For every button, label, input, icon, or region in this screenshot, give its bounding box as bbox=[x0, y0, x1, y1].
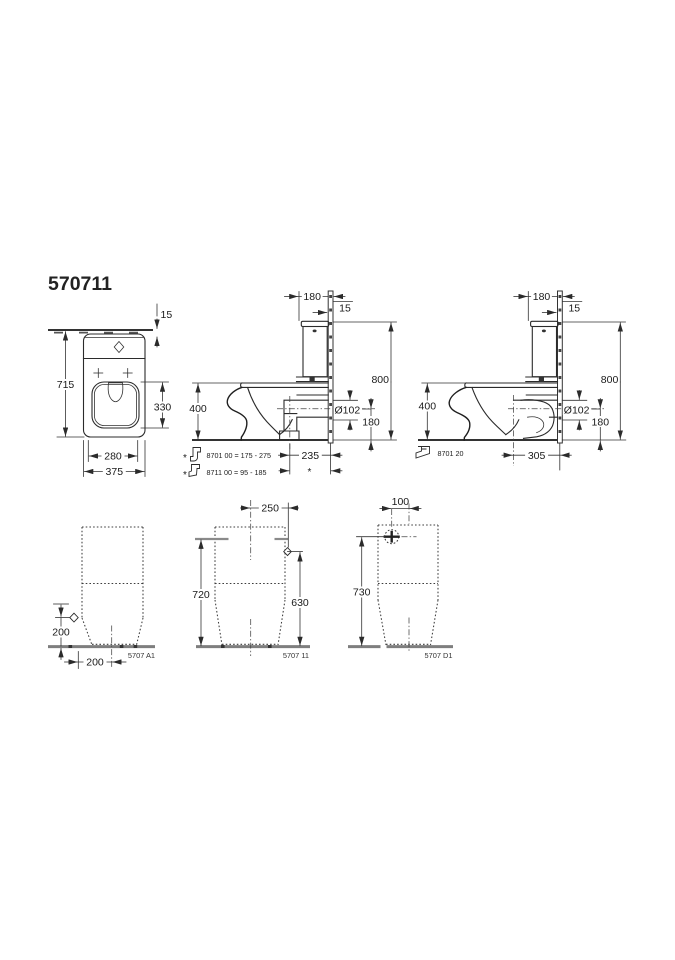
dim-inlet-offset-label: 100 bbox=[392, 496, 410, 508]
dim-bowl-height-label: 400 bbox=[419, 401, 437, 413]
dim-outlet-distance-label: 235 bbox=[302, 450, 320, 462]
body-outline-dashed bbox=[378, 525, 438, 645]
vertical-outlet-bend-icon bbox=[191, 448, 201, 462]
cistern bbox=[532, 327, 556, 377]
dim-bowl-height-label: 400 bbox=[189, 403, 207, 415]
cistern-lid bbox=[301, 321, 328, 326]
outlet-note-text: 8711 00 = 95 - 185 bbox=[207, 468, 267, 477]
flush-spreader bbox=[108, 383, 123, 402]
fixing-view-d1: 100 730 5707 D1 bbox=[348, 496, 453, 660]
variant-code: 5707 D1 bbox=[425, 651, 453, 660]
asterisk-marker: * bbox=[183, 453, 187, 464]
floor-outlet-connector-icon bbox=[416, 447, 430, 459]
dim-outlet-diameter-label: Ø102 bbox=[564, 405, 590, 417]
side-view-horizontal: 180 15 800 400 Ø102 180 30 bbox=[416, 291, 626, 470]
fixing-cross-icons bbox=[94, 369, 132, 378]
cistern bbox=[303, 327, 327, 377]
outlet-note-text: 8701 20 bbox=[438, 449, 464, 458]
dim-total-height-label: 800 bbox=[601, 374, 619, 386]
horizontal-outlet-bend-icon bbox=[189, 465, 200, 477]
dim-wall-gap-label: 15 bbox=[161, 309, 173, 321]
technical-drawing: 570711 15 715 330 bbox=[0, 0, 675, 960]
side-view-vario: 180 15 800 400 Ø102 180 bbox=[183, 291, 396, 481]
dim-outlet-height-label: 180 bbox=[592, 416, 610, 428]
flush-button-icon bbox=[114, 342, 124, 353]
variant-code: 5707 11 bbox=[283, 651, 309, 660]
dim-wall-thickness-label: 15 bbox=[339, 302, 351, 314]
asterisk-marker: * bbox=[183, 470, 187, 481]
dim-right-height-label: 630 bbox=[291, 597, 309, 609]
fixing-bolt bbox=[539, 377, 544, 381]
wall-section bbox=[328, 291, 333, 443]
fixing-view-a1: 200 200 5707 A1 bbox=[48, 527, 155, 669]
dim-cistern-depth-label: 180 bbox=[303, 291, 321, 303]
asterisk-marker: * bbox=[308, 467, 312, 478]
dim-cistern-depth-label: 180 bbox=[533, 291, 551, 303]
page-title: 570711 bbox=[48, 273, 112, 295]
cistern-lid bbox=[531, 321, 558, 326]
outlet-note: 8701 20 bbox=[416, 447, 463, 459]
flush-button-icon bbox=[542, 330, 546, 333]
dim-hole-spacing-label: 250 bbox=[261, 503, 279, 515]
dim-height-label: 715 bbox=[57, 379, 75, 391]
dim-outlet-height-label: 180 bbox=[362, 416, 380, 428]
dim-hole-offset-label: 200 bbox=[86, 657, 104, 669]
variant-code: 5707 A1 bbox=[128, 651, 155, 660]
dim-wall-thickness-label: 15 bbox=[568, 302, 580, 314]
bowl-profile bbox=[449, 387, 470, 440]
outlet-note-text: 8701 00 = 175 - 275 bbox=[207, 451, 272, 460]
body-outline-dashed bbox=[215, 527, 285, 645]
front-view: 15 715 330 280 375 bbox=[48, 304, 174, 478]
wall-section bbox=[558, 291, 563, 443]
vario-outlet-elbow bbox=[280, 400, 329, 440]
outlet-note-1: * 8701 00 = 175 - 275 bbox=[183, 448, 271, 465]
seat-opening-outer bbox=[92, 382, 139, 428]
bowl-profile bbox=[227, 387, 247, 440]
dim-inlet-height-label: 730 bbox=[353, 587, 371, 599]
fixing-bolt bbox=[310, 377, 315, 381]
seat-opening-inner bbox=[94, 384, 136, 425]
spec-sheet-page: 570711 15 715 330 bbox=[0, 0, 675, 960]
dim-hole-height-label: 200 bbox=[52, 627, 70, 639]
dim-outlet-distance-label: 305 bbox=[528, 450, 546, 462]
dim-outlet-diameter-label: Ø102 bbox=[335, 405, 361, 417]
fixing-view-11: 250 720 630 5707 11 bbox=[190, 500, 312, 660]
fixing-hole-marker bbox=[70, 613, 78, 622]
dim-opening-height-label: 330 bbox=[154, 402, 172, 414]
dim-total-width-label: 375 bbox=[106, 466, 124, 478]
dim-total-height-label: 800 bbox=[371, 374, 389, 386]
flush-button-icon bbox=[313, 330, 317, 333]
dim-left-height-label: 720 bbox=[192, 589, 210, 601]
outlet-note-2: * 8711 00 = 95 - 185 bbox=[183, 465, 266, 482]
dim-foot-width-label: 280 bbox=[104, 451, 122, 463]
body-outline-dashed bbox=[82, 527, 143, 645]
